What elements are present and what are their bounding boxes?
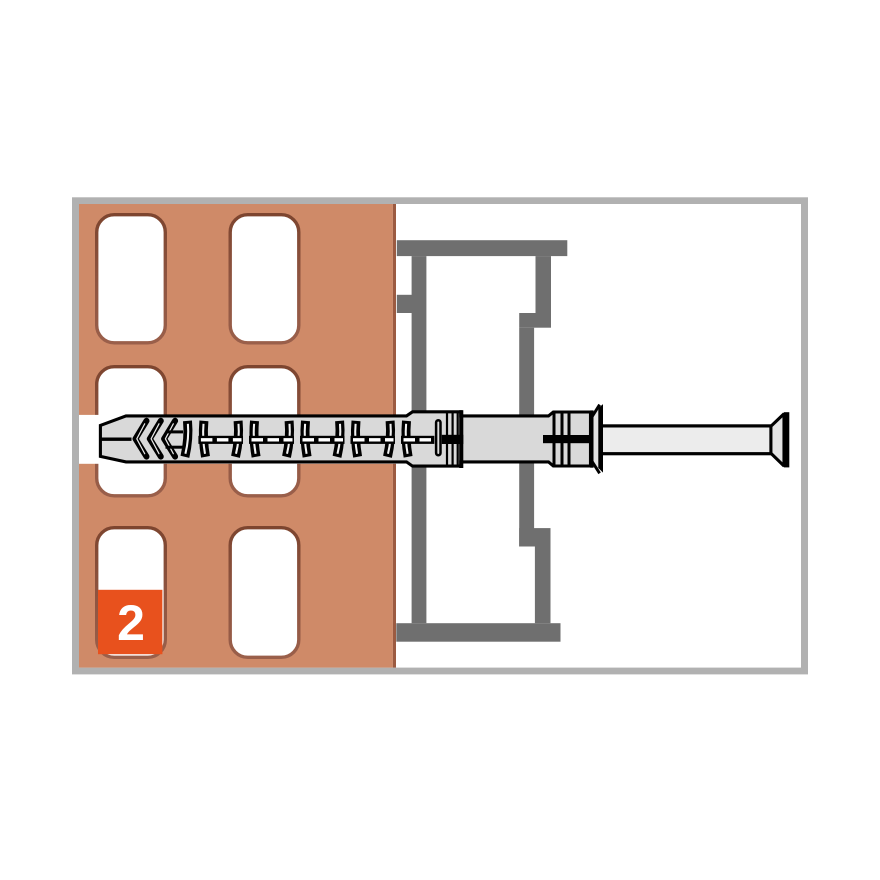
svg-text:2: 2 [117, 595, 145, 651]
